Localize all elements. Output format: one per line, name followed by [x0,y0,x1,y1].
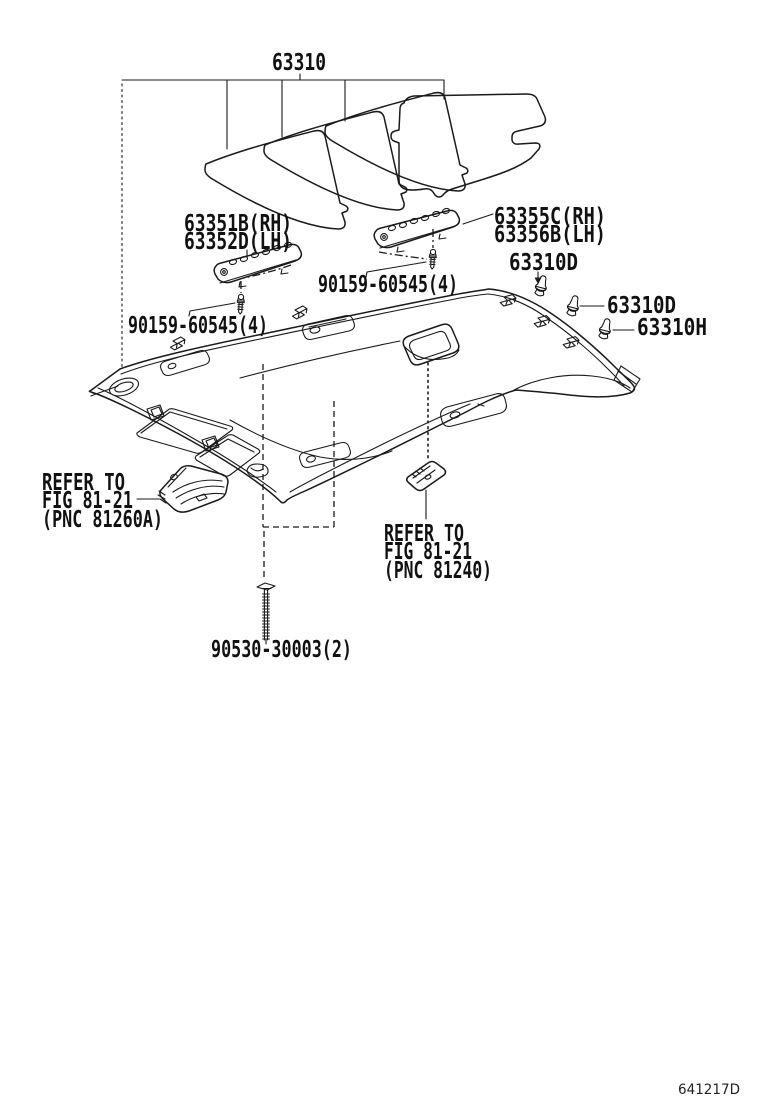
rail-right-63355c [374,208,459,252]
grab-handle-recess-right [441,394,507,427]
small-wavy-cutout [247,464,268,477]
visor-cutout [161,351,210,376]
label-63352d-lh: 63352D(LH) [184,229,292,255]
refer-console-line3: (PNC 81260A) [42,507,163,533]
label-63310d-top: 63310D [509,250,578,276]
rail-screw-left [237,294,245,314]
clip-63310d-mid [566,295,582,317]
front-corner-oval [107,375,140,399]
headlining-parts-diagram: 63310 63351B(RH) 63352D(LH) 63355C(RH) 6… [0,0,760,1112]
figure-code: 641217D [678,1082,740,1098]
parts-diagram-page: 63310 63351B(RH) 63352D(LH) 63355C(RH) 6… [0,0,760,1112]
console-screw-90530 [257,583,275,644]
label-90159-60545-right: 90159-60545(4) [318,272,458,298]
label-63310h: 63310H [637,315,707,341]
front-oblong-recess [303,316,355,340]
rail-screw-right [429,249,437,269]
overhead-console-part [158,466,228,512]
dome-lamp-part [407,462,446,520]
label-90159-60545-left: 90159-60545(4) [128,313,268,339]
label-63310: 63310 [272,50,326,76]
clip-63310h [598,318,614,340]
roof-panel-2 [264,112,407,210]
refer-lamp-line3: (PNC 81240) [384,558,492,584]
label-63356b-lh: 63356B(LH) [494,222,606,248]
label-90530-30003: 90530-30003(2) [211,637,352,663]
sunroof-opening [403,324,459,365]
